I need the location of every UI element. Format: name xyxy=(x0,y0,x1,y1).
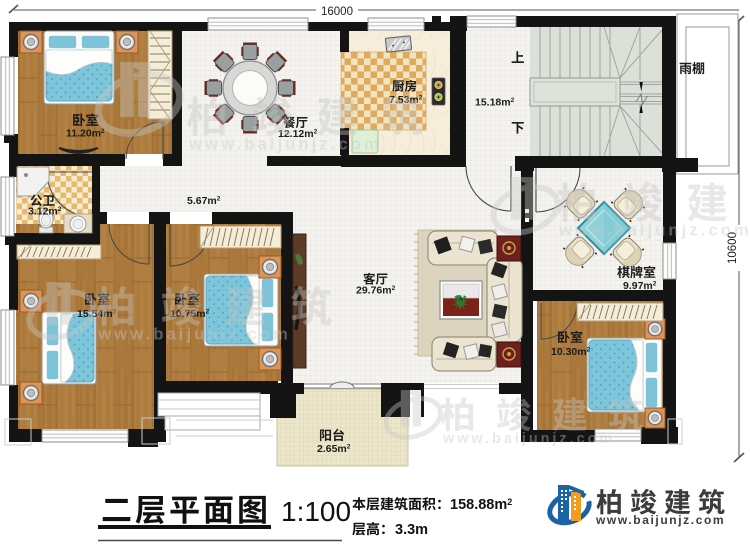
svg-text:www.baijunjz.com: www.baijunjz.com xyxy=(188,135,382,154)
svg-text:www.baijunjz.com: www.baijunjz.com xyxy=(595,513,725,527)
svg-text:2.65m2: 2.65m2 xyxy=(317,443,351,455)
svg-text:158.88m2: 158.88m2 xyxy=(450,497,512,513)
svg-text:10.30m2: 10.30m2 xyxy=(551,346,591,358)
svg-text:9.97m2: 9.97m2 xyxy=(623,280,657,292)
svg-text:29.76m2: 29.76m2 xyxy=(356,285,396,297)
svg-text:1:100: 1:100 xyxy=(281,496,351,527)
svg-text:16000: 16000 xyxy=(321,6,353,18)
svg-text:www.baijunjz.com: www.baijunjz.com xyxy=(558,221,750,240)
svg-text:3.3m: 3.3m xyxy=(395,522,428,538)
svg-text:15.18m2: 15.18m2 xyxy=(475,97,515,109)
svg-text:www.baijunjz.com: www.baijunjz.com xyxy=(97,325,291,344)
svg-text:3.12m2: 3.12m2 xyxy=(28,206,62,218)
svg-text:www.baijunjz.com: www.baijunjz.com xyxy=(442,431,615,447)
svg-text:11.20m2: 11.20m2 xyxy=(66,128,105,140)
svg-text:5.67m2: 5.67m2 xyxy=(187,195,221,207)
